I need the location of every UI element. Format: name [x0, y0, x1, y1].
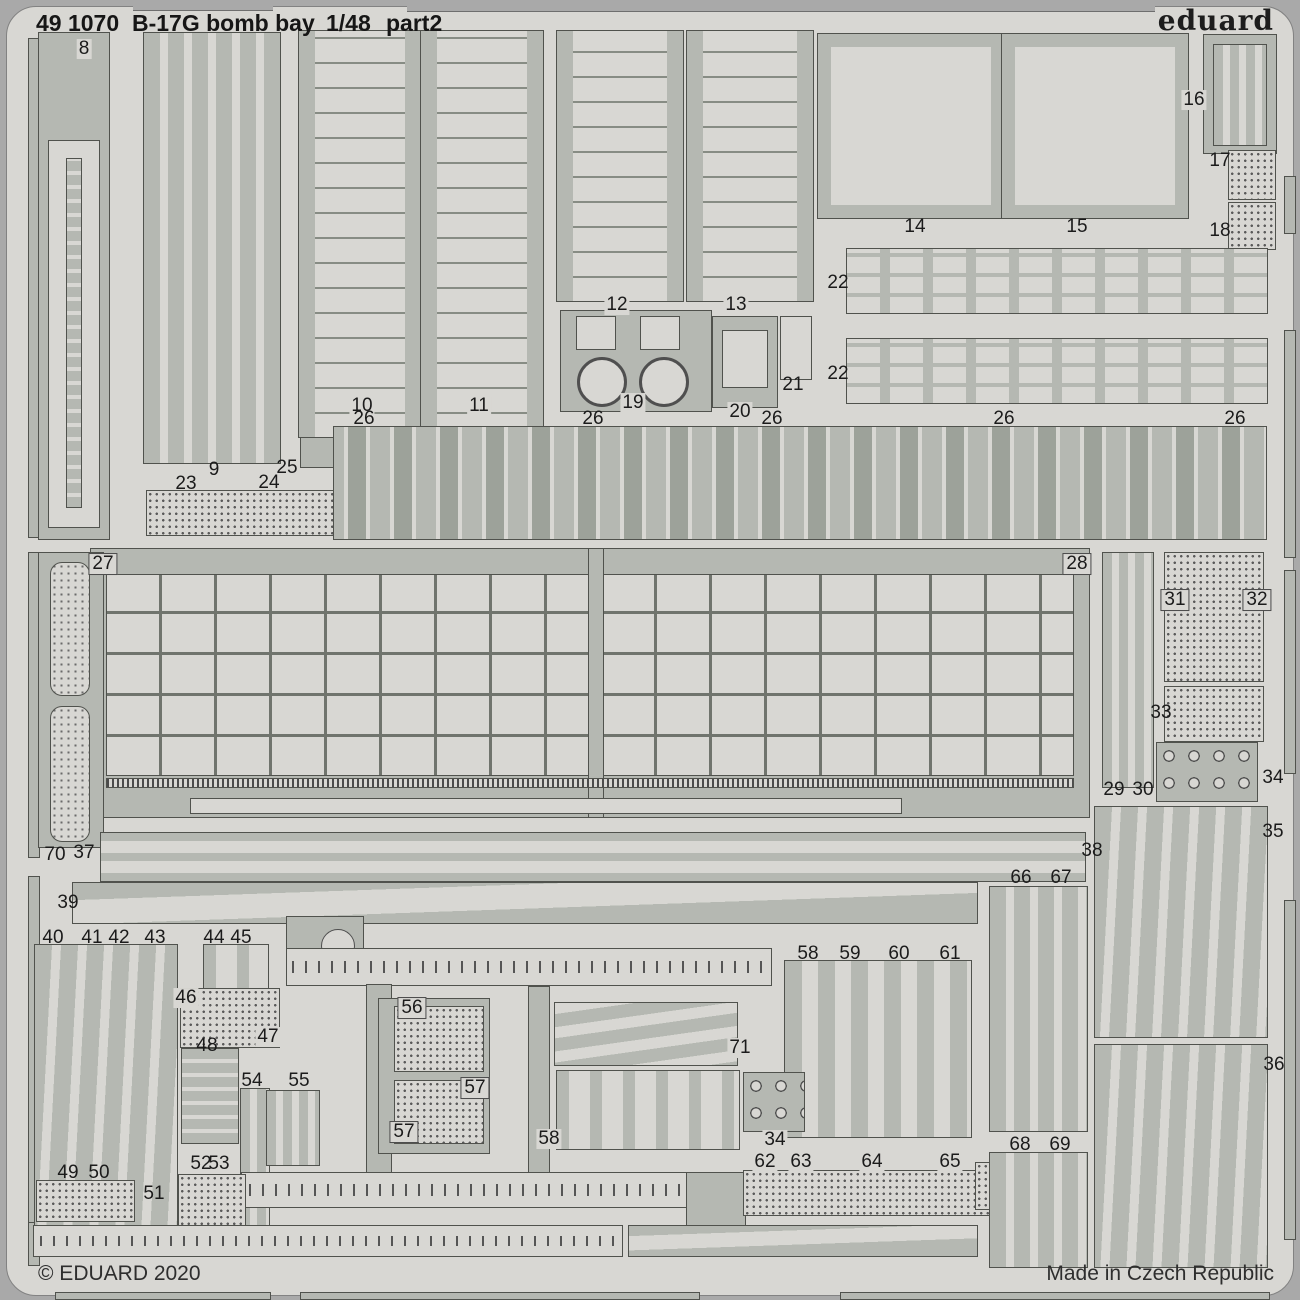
fret-piece — [55, 1292, 271, 1300]
fret-parts-layer: 8910111213141516171819202122222324252626… — [0, 0, 1300, 1300]
part-number-label: 51 — [143, 1184, 164, 1204]
fret-piece — [722, 330, 768, 388]
fret-piece — [190, 798, 902, 814]
fret-piece — [628, 1225, 978, 1257]
fret-piece — [840, 1292, 1270, 1300]
part-number-label: 70 — [44, 845, 65, 865]
fret-piece — [106, 778, 1074, 788]
copyright-text: © EDUARD 2020 — [38, 1262, 201, 1286]
fret-piece — [1228, 150, 1276, 200]
scale-label: 1/48 — [326, 10, 371, 37]
part-number-label: 56 — [397, 997, 426, 1019]
part-number-label: 25 — [276, 458, 297, 478]
fret-piece — [1284, 900, 1296, 1240]
part-number-label: 68 — [1009, 1135, 1030, 1155]
part-number-label: 36 — [1263, 1055, 1284, 1075]
part-number-label: 34 — [1262, 768, 1283, 788]
part-number-label: 18 — [1209, 221, 1230, 241]
part-number-label: 42 — [108, 928, 129, 948]
part-number-label: 27 — [88, 553, 117, 575]
fret-piece — [1156, 742, 1258, 802]
part-number-label: 39 — [57, 893, 78, 913]
fret-piece — [1284, 176, 1296, 234]
fret-piece — [1102, 552, 1154, 788]
fret-piece — [50, 562, 90, 696]
fret-piece — [1284, 330, 1296, 558]
part-number-label: 15 — [1066, 217, 1087, 237]
part-number-label: 19 — [620, 393, 645, 413]
fret-piece — [178, 1174, 246, 1226]
part-number-label: 54 — [241, 1071, 262, 1091]
fret-piece — [554, 1002, 738, 1066]
part-number-label: 48 — [196, 1036, 217, 1056]
fret-piece — [1164, 552, 1264, 682]
part-number-label: 66 — [1010, 868, 1031, 888]
part-number-label: 44 — [203, 928, 224, 948]
fret-piece — [818, 34, 1004, 218]
fret-piece — [286, 948, 772, 986]
part-number-label: 50 — [88, 1163, 109, 1183]
fret-piece — [407, 0, 1155, 12]
part-number-label: 47 — [255, 1027, 280, 1047]
part-number-label: 12 — [604, 295, 629, 315]
fret-piece — [784, 960, 972, 1138]
part-number-label: 57 — [460, 1077, 489, 1099]
part-number-label: 60 — [888, 944, 909, 964]
fret-piece — [556, 1070, 740, 1150]
part-number-label: 34 — [762, 1130, 787, 1150]
part-number-label: 26 — [993, 409, 1014, 429]
part-number-label: 29 — [1103, 780, 1124, 800]
fret-piece — [420, 30, 544, 438]
origin-text: Made in Czech Republic — [1046, 1262, 1274, 1286]
part-number-label: 38 — [1081, 841, 1102, 861]
fret-piece — [143, 32, 281, 464]
part-number-label: 57 — [389, 1121, 418, 1143]
part-number-label: 46 — [173, 988, 198, 1008]
fret-piece — [100, 832, 1086, 882]
fret-piece — [1094, 1044, 1268, 1268]
part-number-label: 40 — [42, 928, 63, 948]
part-number-label: 41 — [81, 928, 102, 948]
part-number-label: 26 — [1224, 409, 1245, 429]
fret-piece — [743, 1072, 805, 1132]
part-number-label: 26 — [761, 409, 782, 429]
part-number-label: 11 — [467, 396, 491, 416]
part-number-label: 37 — [73, 843, 94, 863]
fret-piece — [989, 1152, 1088, 1268]
fret-piece — [333, 426, 1267, 540]
part-number-label: 64 — [859, 1152, 884, 1172]
part-number-label: 17 — [1209, 151, 1230, 171]
fret-piece — [72, 882, 978, 924]
part-number-label: 35 — [1262, 822, 1283, 842]
fret-piece — [298, 30, 422, 438]
part-number-label: 14 — [904, 217, 925, 237]
fret-piece — [1002, 34, 1188, 218]
part-number-label: 63 — [788, 1152, 813, 1172]
part-number-label: 58 — [536, 1129, 561, 1149]
part-number-label: 58 — [797, 944, 818, 964]
fret-piece — [846, 338, 1268, 404]
part-number-label: 26 — [353, 409, 374, 429]
part-number-label: 69 — [1049, 1135, 1070, 1155]
part-number-label: 26 — [582, 409, 603, 429]
part-number-label: 49 — [57, 1163, 78, 1183]
part-number-label: 22 — [827, 273, 848, 293]
brand-logo: eduard — [1158, 4, 1274, 37]
part-number-label: 32 — [1242, 589, 1271, 611]
part-number-label: 16 — [1181, 90, 1206, 110]
part-number-label: 45 — [230, 928, 251, 948]
fret-piece — [181, 1048, 239, 1144]
part-number-label: 21 — [782, 375, 803, 395]
fret-piece — [146, 490, 342, 536]
catalog-number: 49 1070 — [36, 10, 119, 37]
part-number-label: 9 — [209, 460, 220, 480]
fret-piece — [1213, 44, 1267, 146]
fret-piece — [33, 1225, 623, 1257]
part-number-label: 61 — [939, 944, 960, 964]
fret-piece — [686, 1172, 746, 1228]
part-number-label: 55 — [288, 1071, 309, 1091]
part-number-label: 33 — [1150, 703, 1171, 723]
fret-piece — [1094, 806, 1268, 1038]
fret-piece — [780, 316, 812, 380]
part-number-label: 67 — [1050, 868, 1071, 888]
fret-piece — [36, 1180, 135, 1222]
part-number-label: 71 — [727, 1038, 752, 1058]
fret-piece — [686, 30, 814, 302]
part-number-label: 8 — [77, 39, 92, 59]
fret-piece — [300, 1292, 700, 1300]
photoetch-sheet-scan: 8910111213141516171819202122222324252626… — [0, 0, 1300, 1300]
part-number-label: 31 — [1160, 589, 1189, 611]
part-number-label: 59 — [839, 944, 860, 964]
part-number-label: 13 — [723, 295, 748, 315]
fret-piece — [1284, 570, 1296, 774]
fret-piece — [846, 248, 1268, 314]
part-number-label: 30 — [1132, 780, 1153, 800]
part-label: part2 — [386, 10, 442, 37]
fret-piece — [66, 158, 82, 508]
fret-piece — [50, 706, 90, 842]
fret-piece — [1164, 686, 1264, 742]
fret-piece — [640, 316, 680, 350]
part-number-label: 20 — [727, 402, 752, 422]
part-number-label: 23 — [175, 474, 196, 494]
fret-piece — [1228, 202, 1276, 250]
fret-piece — [989, 886, 1088, 1132]
part-number-label: 65 — [937, 1152, 962, 1172]
part-number-label: 43 — [144, 928, 165, 948]
fret-piece — [266, 1090, 320, 1166]
fret-piece — [576, 316, 616, 350]
part-number-label: 53 — [208, 1154, 229, 1174]
part-number-label: 62 — [752, 1152, 777, 1172]
sheet-title: B-17G bomb bay — [132, 10, 315, 37]
part-number-label: 28 — [1062, 553, 1091, 575]
fret-piece — [556, 30, 684, 302]
part-number-label: 22 — [827, 364, 848, 384]
